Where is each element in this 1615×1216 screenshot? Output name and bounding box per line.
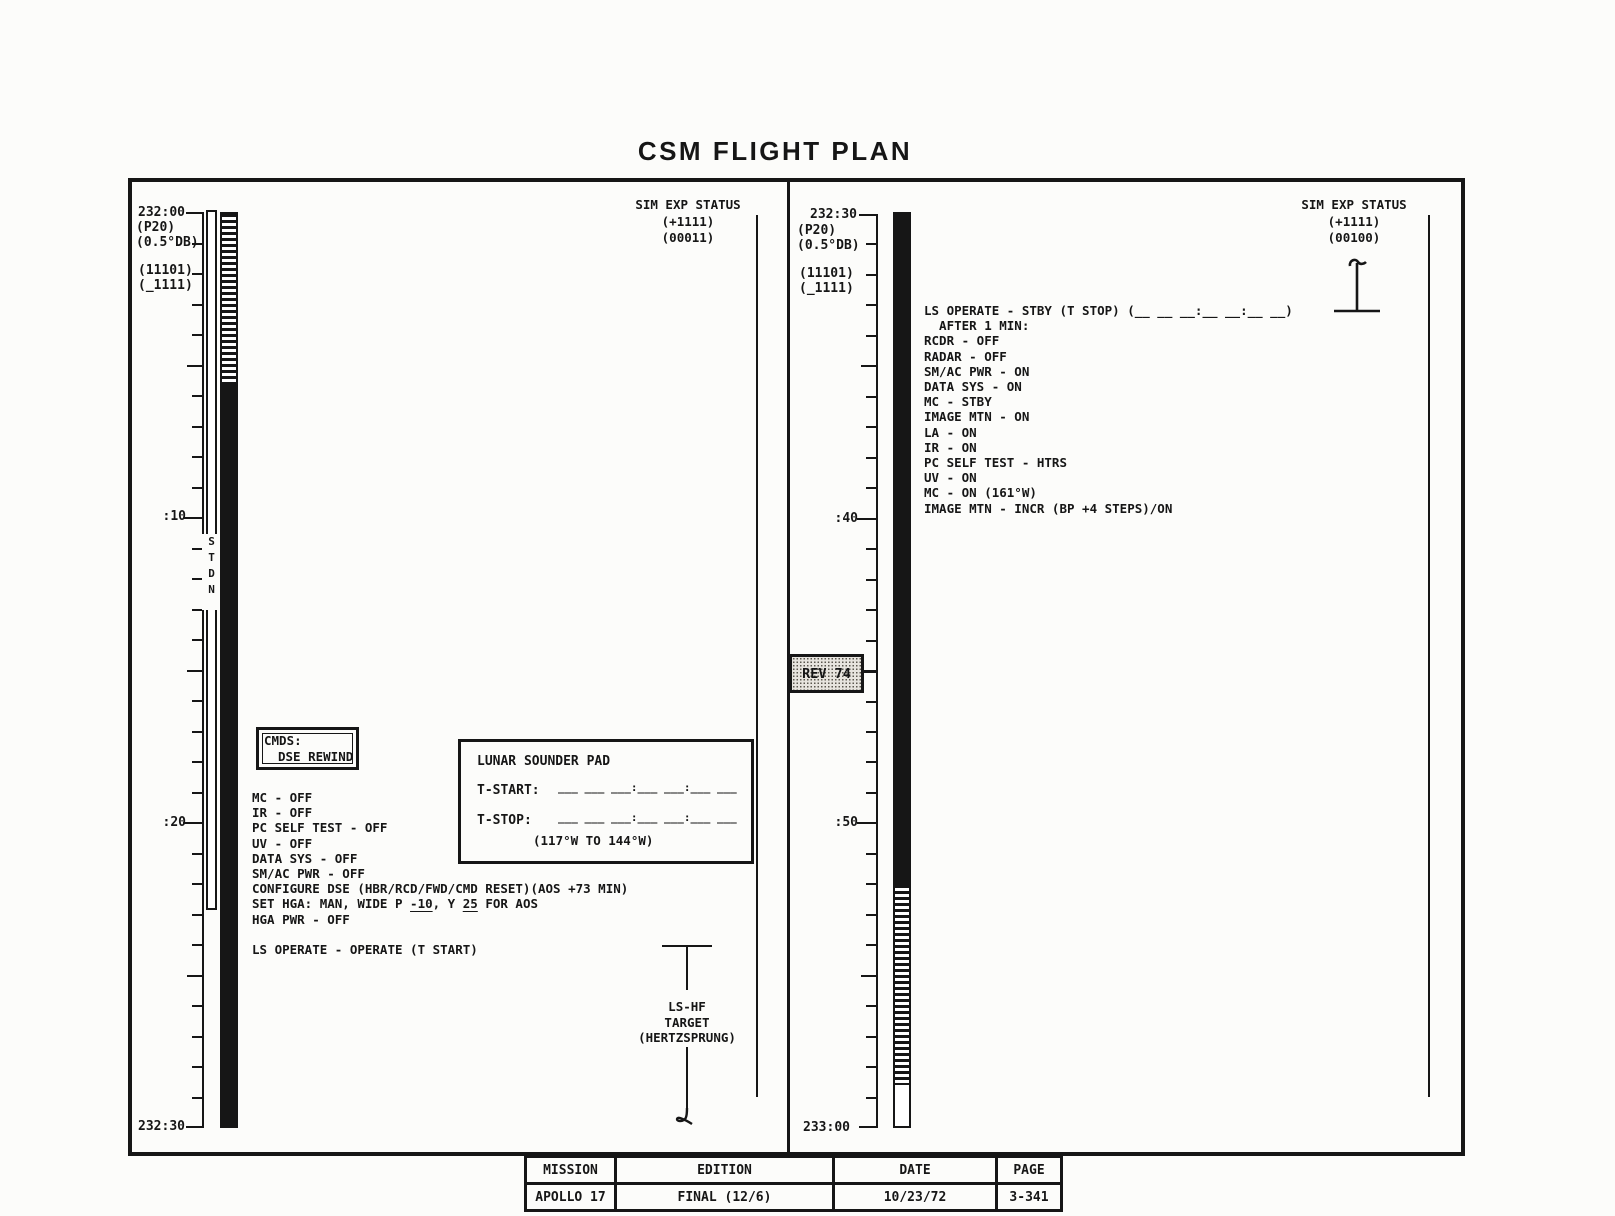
lunar-sounder-pad-title: LUNAR SOUNDER PAD bbox=[477, 755, 610, 769]
timeline-minute-tick bbox=[857, 518, 876, 520]
procedure-line: RCDR - OFF bbox=[924, 333, 1293, 348]
left-p20-label: (P20) bbox=[136, 221, 175, 235]
t-stop-label: T-STOP: bbox=[477, 814, 532, 828]
procedure-line: SM/AC PWR - OFF bbox=[252, 866, 628, 881]
timeline-minute-tick bbox=[192, 700, 202, 702]
timeline-minute-tick bbox=[866, 1005, 876, 1007]
ls-hf-marker-bottom-stem bbox=[686, 1047, 688, 1113]
lunar-sounder-pad-box: LUNAR SOUNDER PAD T-START: ___ ___ ___:_… bbox=[458, 739, 754, 864]
footer-header-page: PAGE bbox=[997, 1157, 1062, 1184]
t-start-label: T-START: bbox=[477, 784, 540, 798]
timeline-minute-tick bbox=[866, 609, 876, 611]
text-segment: SET HGA: MAN, WIDE P bbox=[252, 896, 410, 911]
text-segment: , Y bbox=[433, 896, 463, 911]
timeline-minute-tick bbox=[192, 578, 202, 580]
timeline-minute-tick bbox=[866, 701, 876, 703]
footer-value-edition: FINAL (12/6) bbox=[616, 1184, 834, 1211]
timeline-minute-tick bbox=[192, 792, 202, 794]
right-ruler-bottom-dash bbox=[859, 1126, 877, 1128]
timeline-minute-tick bbox=[192, 456, 202, 458]
footer-value-row: APOLLO 17 FINAL (12/6) 10/23/72 3-341 bbox=[526, 1184, 1062, 1211]
procedure-line: LS OPERATE - OPERATE (T START) bbox=[252, 942, 628, 957]
sim-exp-marker-symbol bbox=[1332, 258, 1382, 316]
right-time-top: 232:30 bbox=[800, 208, 857, 222]
cmds-callout-box: CMDS: DSE REWIND bbox=[256, 727, 359, 770]
footer-header-row: MISSION EDITION DATE PAGE bbox=[526, 1157, 1062, 1184]
dse-rewind-label: DSE REWIND bbox=[278, 750, 353, 764]
timeline-minute-tick bbox=[866, 457, 876, 459]
timeline-minute-tick bbox=[866, 640, 876, 642]
ls-hf-marker-end-curl bbox=[672, 1108, 698, 1126]
right-code2-label: (_1111) bbox=[799, 282, 854, 296]
timeline-minute-tick bbox=[183, 517, 202, 519]
timeline-minute-tick bbox=[866, 914, 876, 916]
right-ruler-top-dash bbox=[859, 214, 877, 216]
procedure-line: LA - ON bbox=[924, 425, 1293, 440]
procedure-line: AFTER 1 MIN: bbox=[924, 318, 1293, 333]
timeline-minute-tick bbox=[866, 243, 876, 245]
timeline-minute-tick bbox=[866, 304, 876, 306]
timeline-minute-tick bbox=[861, 975, 876, 977]
text-segment: FOR AOS bbox=[478, 896, 538, 911]
timeline-minute-tick bbox=[187, 670, 202, 672]
left-activity-bar bbox=[220, 212, 238, 1128]
timeline-minute-tick bbox=[866, 1066, 876, 1068]
procedure-line bbox=[252, 927, 628, 942]
left-sim-exp-status: SIM EXP STATUS (+1111) (00011) bbox=[608, 197, 768, 247]
right-db-label: (0.5°DB) bbox=[797, 239, 860, 253]
t-stop-blank: ___ ___ ___:___ ___:___ ___ bbox=[558, 812, 737, 824]
procedure-line: SM/AC PWR - ON bbox=[924, 364, 1293, 379]
timeline-minute-tick bbox=[183, 822, 202, 824]
right-procedure-block: LS OPERATE - STBY (T STOP) (__ __ __:__ … bbox=[924, 303, 1293, 516]
timeline-minute-tick bbox=[192, 731, 202, 733]
timeline-minute-tick bbox=[192, 334, 202, 336]
timeline-minute-tick bbox=[861, 670, 876, 672]
timeline-minute-tick bbox=[866, 1036, 876, 1038]
timeline-minute-tick bbox=[866, 426, 876, 428]
right-bar-solid-segment bbox=[895, 214, 909, 885]
left-ruler-line bbox=[202, 213, 204, 1128]
rev-74-flag: REV 74 bbox=[789, 654, 864, 693]
footer-value-page: 3-341 bbox=[997, 1184, 1062, 1211]
timeline-minute-tick bbox=[857, 822, 876, 824]
left-bar-solid-segment bbox=[222, 382, 236, 1126]
right-status-line bbox=[1428, 215, 1430, 1097]
timeline-minute-tick bbox=[192, 914, 202, 916]
footer-header-edition: EDITION bbox=[616, 1157, 834, 1184]
timeline-minute-tick bbox=[192, 548, 202, 550]
timeline-minute-tick bbox=[866, 335, 876, 337]
left-bar-hatched-segment bbox=[222, 214, 236, 382]
footer-value-mission: APOLLO 17 bbox=[526, 1184, 616, 1211]
timeline-minute-tick bbox=[192, 853, 202, 855]
procedure-line: MC - STBY bbox=[924, 394, 1293, 409]
footer-header-mission: MISSION bbox=[526, 1157, 616, 1184]
footer-header-date: DATE bbox=[834, 1157, 997, 1184]
left-code1-label: (11101) bbox=[138, 264, 193, 278]
procedure-line: UV - ON bbox=[924, 470, 1293, 485]
timeline-minute-tick bbox=[192, 395, 202, 397]
timeline-minute-tick bbox=[192, 1036, 202, 1038]
left-time-top: 232:00 bbox=[128, 206, 185, 220]
timeline-minute-tick bbox=[192, 883, 202, 885]
timeline-minute-tick bbox=[192, 426, 202, 428]
timeline-minute-tick bbox=[187, 975, 202, 977]
procedure-line: CONFIGURE DSE (HBR/RCD/FWD/CMD RESET)(AO… bbox=[252, 881, 628, 896]
procedure-line: RADAR - OFF bbox=[924, 349, 1293, 364]
timeline-minute-tick bbox=[866, 761, 876, 763]
timeline-minute-tick bbox=[866, 396, 876, 398]
left-time-10: :10 bbox=[150, 510, 186, 524]
timeline-minute-tick bbox=[192, 944, 202, 946]
ls-hf-target-label: LS-HF TARGET (HERTZSPRUNG) bbox=[612, 999, 762, 1046]
footer-value-date: 10/23/72 bbox=[834, 1184, 997, 1211]
page-title: CSM FLIGHT PLAN bbox=[575, 136, 975, 167]
right-time-40: :40 bbox=[822, 512, 858, 526]
procedure-line: PC SELF TEST - HTRS bbox=[924, 455, 1293, 470]
timeline-minute-tick bbox=[866, 944, 876, 946]
footer-table: MISSION EDITION DATE PAGE APOLLO 17 FINA… bbox=[524, 1155, 1063, 1212]
timeline-minute-tick bbox=[192, 273, 202, 275]
timeline-minute-tick bbox=[192, 304, 202, 306]
left-time-20: :20 bbox=[150, 816, 186, 830]
left-code2-label: (_1111) bbox=[138, 279, 193, 293]
left-ruler-bottom-dash bbox=[186, 1126, 204, 1128]
underlined-value: -10 bbox=[410, 896, 433, 911]
left-ruler-top-dash bbox=[186, 212, 204, 214]
right-time-50: :50 bbox=[822, 816, 858, 830]
timeline-minute-tick bbox=[187, 365, 202, 367]
procedure-line: HGA PWR - OFF bbox=[252, 912, 628, 927]
procedure-line: IR - ON bbox=[924, 440, 1293, 455]
t-start-blank: ___ ___ ___:___ ___:___ ___ bbox=[558, 782, 737, 794]
timeline-minute-tick bbox=[866, 274, 876, 276]
timeline-minute-tick bbox=[192, 1097, 202, 1099]
scanned-page: CSM FLIGHT PLAN 232:00 (P20) (0.5°DB) (1… bbox=[0, 0, 1615, 1216]
timeline-minute-tick bbox=[192, 487, 202, 489]
left-time-bottom: 232:30 bbox=[128, 1120, 185, 1134]
right-activity-bar bbox=[893, 212, 911, 1128]
timeline-minute-tick bbox=[866, 548, 876, 550]
timeline-minute-tick bbox=[192, 639, 202, 641]
procedure-line: IMAGE MTN - ON bbox=[924, 409, 1293, 424]
right-time-bottom: 233:00 bbox=[790, 1121, 850, 1135]
timeline-minute-tick bbox=[192, 1066, 202, 1068]
timeline-minute-tick bbox=[866, 731, 876, 733]
timeline-minute-tick bbox=[866, 579, 876, 581]
timeline-minute-tick bbox=[866, 853, 876, 855]
left-status-line bbox=[756, 215, 758, 1097]
procedure-line: DATA SYS - ON bbox=[924, 379, 1293, 394]
right-p20-label: (P20) bbox=[797, 224, 836, 238]
procedure-line: LS OPERATE - STBY (T STOP) (__ __ __:__ … bbox=[924, 303, 1293, 318]
longitude-range-note: (117°W TO 144°W) bbox=[533, 834, 653, 848]
procedure-line: SET HGA: MAN, WIDE P -10, Y 25 FOR AOS bbox=[252, 896, 628, 911]
stdn-bar-label: S T D N bbox=[202, 534, 221, 610]
left-db-label: (0.5°DB) bbox=[136, 236, 199, 250]
timeline-minute-tick bbox=[866, 487, 876, 489]
procedure-line: IMAGE MTN - INCR (BP +4 STEPS)/ON bbox=[924, 501, 1293, 516]
right-bar-hatched-segment bbox=[895, 885, 909, 1085]
procedure-line: MC - ON (161°W) bbox=[924, 485, 1293, 500]
timeline-minute-tick bbox=[192, 243, 202, 245]
timeline-minute-tick bbox=[192, 761, 202, 763]
timeline-minute-tick bbox=[192, 609, 202, 611]
underlined-value: 25 bbox=[463, 896, 478, 911]
timeline-minute-tick bbox=[866, 1097, 876, 1099]
timeline-minute-tick bbox=[861, 365, 876, 367]
cmds-label: CMDS: bbox=[264, 734, 302, 748]
timeline-minute-tick bbox=[192, 1005, 202, 1007]
timeline-minute-tick bbox=[866, 883, 876, 885]
timeline-minute-tick bbox=[866, 792, 876, 794]
right-code1-label: (11101) bbox=[799, 267, 854, 281]
ls-hf-marker-top-stem bbox=[686, 945, 688, 990]
right-sim-exp-status: SIM EXP STATUS (+1111) (00100) bbox=[1274, 197, 1434, 247]
